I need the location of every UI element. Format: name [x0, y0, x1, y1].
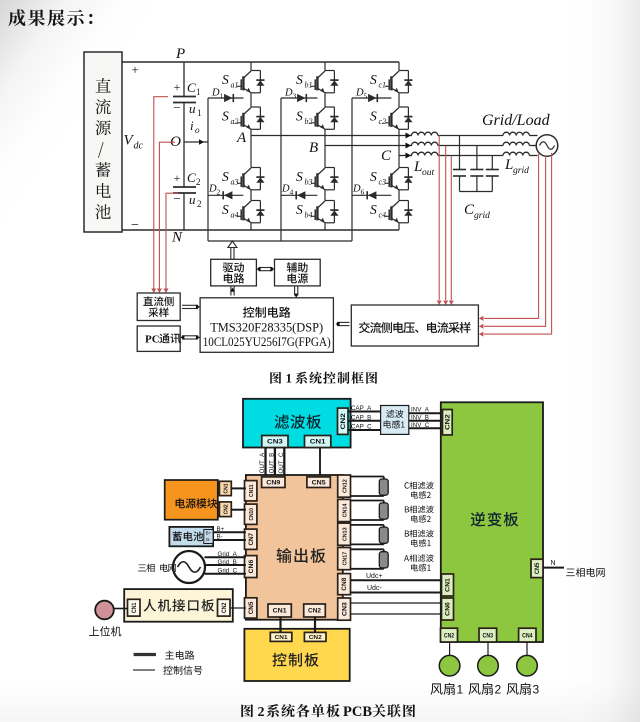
- svg-text:N: N: [550, 560, 555, 567]
- svg-text:grid: grid: [474, 211, 490, 221]
- svg-text:S: S: [296, 109, 303, 124]
- svg-text:CN6: CN6: [248, 559, 255, 573]
- svg-text:S: S: [296, 202, 303, 217]
- svg-text:u: u: [189, 192, 196, 207]
- svg-text:o: o: [195, 125, 200, 135]
- svg-text:N: N: [171, 230, 183, 246]
- svg-text:5: 5: [364, 92, 368, 101]
- svg-text:S: S: [222, 169, 229, 184]
- svg-text:1: 1: [196, 87, 201, 97]
- svg-text:A: A: [236, 130, 247, 146]
- svg-text:P: P: [175, 46, 185, 62]
- svg-text:a2: a2: [231, 117, 239, 126]
- svg-text:CN5: CN5: [534, 562, 541, 574]
- svg-text:out: out: [422, 168, 435, 178]
- svg-text:CN1: CN1: [223, 484, 229, 494]
- svg-text:4: 4: [290, 188, 294, 197]
- svg-text:PCB: PCB: [343, 704, 372, 720]
- svg-text:CAP_B: CAP_B: [351, 414, 371, 421]
- svg-text:1: 1: [401, 421, 406, 430]
- svg-text:Grid_B: Grid_B: [218, 559, 237, 566]
- svg-text:CN12: CN12: [342, 479, 348, 493]
- svg-text:CN7: CN7: [248, 532, 255, 545]
- svg-text:CN2: CN2: [224, 504, 230, 514]
- svg-text:B+: B+: [217, 526, 225, 533]
- svg-text:CN6: CN6: [445, 602, 452, 616]
- svg-text:CAP_C: CAP_C: [351, 424, 372, 431]
- svg-text:OUT_B: OUT_B: [268, 453, 275, 474]
- svg-text:10CL025YU256I7G(FPGA): 10CL025YU256I7G(FPGA): [203, 335, 331, 349]
- svg-text:CN3: CN3: [483, 633, 494, 639]
- svg-text:INV_C: INV_C: [411, 422, 430, 429]
- svg-text:1: 1: [457, 683, 464, 697]
- svg-text:Udc+: Udc+: [366, 573, 383, 580]
- svg-text:CN1: CN1: [310, 439, 326, 446]
- svg-text:TMS320F28335(DSP): TMS320F28335(DSP): [210, 321, 323, 335]
- svg-text:S: S: [222, 72, 229, 87]
- svg-text:b4: b4: [305, 211, 313, 220]
- svg-text:CN14: CN14: [342, 503, 348, 517]
- svg-text:a3: a3: [231, 178, 239, 187]
- svg-text:S: S: [370, 169, 377, 184]
- svg-text:2: 2: [217, 188, 221, 197]
- svg-text:C: C: [187, 170, 196, 185]
- svg-text:3: 3: [533, 683, 540, 697]
- svg-text:B: B: [309, 140, 318, 156]
- svg-text:OUT_C: OUT_C: [278, 452, 285, 474]
- svg-text:dc: dc: [134, 141, 144, 152]
- svg-text:CN2: CN2: [221, 602, 228, 613]
- svg-text:2: 2: [495, 683, 502, 697]
- svg-text:S: S: [222, 109, 229, 124]
- svg-text:+: +: [174, 80, 181, 94]
- svg-text:u: u: [189, 101, 196, 116]
- svg-text:Grid_C: Grid_C: [218, 568, 238, 575]
- svg-text:c2: c2: [379, 117, 387, 126]
- svg-text:INV_A: INV_A: [411, 407, 430, 414]
- svg-text:B-: B-: [217, 534, 223, 541]
- svg-text:+: +: [174, 171, 181, 185]
- svg-text:CN9: CN9: [266, 479, 281, 486]
- svg-text:S: S: [296, 169, 303, 184]
- svg-text:L: L: [413, 159, 422, 175]
- svg-text:CN11: CN11: [249, 484, 255, 497]
- svg-text:CAP_A: CAP_A: [351, 405, 372, 412]
- svg-text:OUT_A: OUT_A: [259, 452, 266, 474]
- svg-text:CN2: CN2: [309, 635, 322, 641]
- svg-text:b3: b3: [305, 178, 313, 187]
- svg-text:S: S: [370, 109, 377, 124]
- svg-text:Grid_A: Grid_A: [218, 551, 238, 558]
- svg-text:Udc-: Udc-: [367, 585, 382, 592]
- svg-text:B+: B+: [206, 531, 212, 536]
- svg-text:INV_B: INV_B: [411, 414, 429, 421]
- svg-text:CN2: CN2: [445, 414, 452, 430]
- svg-text:S: S: [296, 72, 303, 87]
- svg-text:CN1: CN1: [445, 578, 452, 592]
- svg-text:CN13: CN13: [342, 527, 348, 541]
- svg-text:CN2: CN2: [444, 633, 455, 639]
- svg-text:CN5: CN5: [312, 479, 327, 486]
- svg-text:CN3: CN3: [341, 602, 348, 616]
- svg-text:C: C: [381, 148, 392, 164]
- svg-text:b2: b2: [305, 117, 313, 126]
- svg-text:CN4: CN4: [522, 633, 533, 639]
- svg-text:PC: PC: [145, 334, 160, 346]
- svg-text:CN8: CN8: [341, 577, 348, 591]
- svg-text:grid: grid: [513, 166, 529, 176]
- svg-text:1: 1: [220, 92, 224, 101]
- svg-text:CN2: CN2: [340, 413, 347, 430]
- svg-text:3: 3: [293, 92, 297, 101]
- svg-text:CN1: CN1: [275, 635, 289, 641]
- svg-text:6: 6: [361, 188, 365, 197]
- svg-text:S: S: [370, 202, 377, 217]
- svg-text:C: C: [187, 80, 196, 95]
- svg-text:i: i: [190, 118, 194, 133]
- svg-text:CN10: CN10: [249, 508, 255, 521]
- svg-text:CN3: CN3: [267, 439, 283, 446]
- svg-text:S: S: [370, 72, 377, 87]
- svg-text:a1: a1: [231, 81, 239, 90]
- svg-text:B-: B-: [206, 537, 211, 542]
- svg-text:−: −: [173, 100, 180, 115]
- svg-text:2: 2: [197, 199, 202, 209]
- svg-text:1: 1: [197, 108, 202, 118]
- svg-text:Grid/Load: Grid/Load: [482, 112, 551, 129]
- svg-text:CN1: CN1: [131, 602, 138, 613]
- svg-text:2: 2: [196, 177, 201, 187]
- svg-text:c3: c3: [379, 178, 387, 187]
- svg-text:2: 2: [258, 705, 265, 720]
- svg-text:CN1: CN1: [273, 608, 288, 615]
- svg-text:L: L: [504, 157, 513, 173]
- svg-text:1: 1: [286, 371, 293, 386]
- svg-text:CN17: CN17: [342, 552, 348, 566]
- svg-text:b1: b1: [305, 81, 313, 90]
- svg-text:CN5: CN5: [248, 601, 255, 614]
- svg-text:CN2: CN2: [308, 608, 321, 615]
- svg-text:c4: c4: [379, 211, 387, 220]
- svg-text:+: +: [131, 62, 138, 77]
- svg-text:S: S: [222, 202, 229, 217]
- svg-text:a4: a4: [231, 211, 239, 220]
- svg-text:c1: c1: [379, 81, 387, 90]
